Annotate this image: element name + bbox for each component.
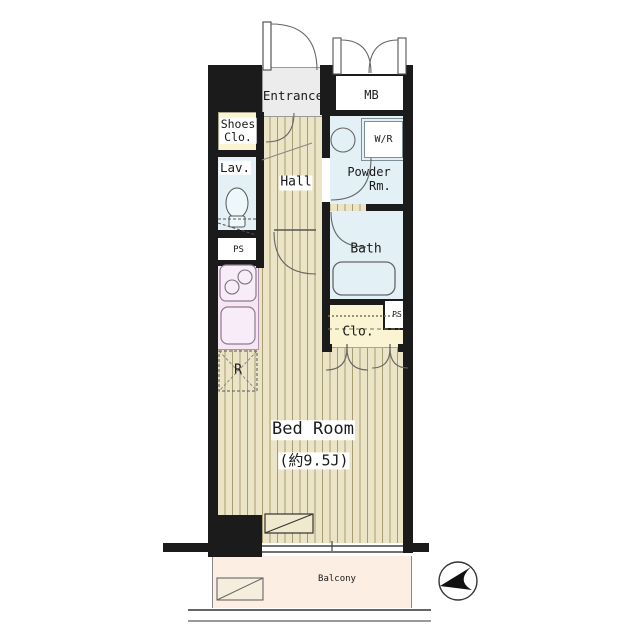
washer-label: W/R <box>374 134 392 145</box>
wall <box>330 299 385 305</box>
pipe-space-left-label: PS <box>233 245 244 255</box>
meter-box-label: MB <box>364 88 378 102</box>
shoes-closet-label: Shoes Clo. <box>220 118 257 144</box>
wall <box>213 150 260 157</box>
balcony <box>212 556 412 608</box>
bedroom-size-label: (約9.5J) <box>278 452 349 469</box>
north-arrow-pointer <box>440 567 472 590</box>
window-opening <box>262 543 403 555</box>
pipe-space-right-label: PS <box>392 310 402 319</box>
wall <box>330 110 405 116</box>
mb-door-swing-arc <box>369 40 398 73</box>
bath-label: Bath <box>349 243 382 258</box>
mb-door-swing-arc <box>341 40 371 73</box>
entrance-label: Entrance <box>262 89 324 103</box>
balcony-label: Balcony <box>317 574 357 584</box>
powder-room-label: Powder Rm. <box>346 166 391 194</box>
lavatory-label: Lav. <box>219 161 251 175</box>
wall-pillar <box>208 515 262 557</box>
wall <box>322 344 332 352</box>
floor-plan: Entrance MB PS W/R PS <box>0 0 640 640</box>
wall <box>320 65 335 115</box>
bedroom-name-label: Bed Room <box>271 420 355 440</box>
entrance-door-leaf <box>263 22 271 70</box>
wall <box>213 260 260 266</box>
hall-label: Hall <box>279 176 312 191</box>
wall <box>208 65 218 517</box>
entrance-door-swing-arc <box>271 24 317 70</box>
wall <box>213 230 260 236</box>
kitchen-counter <box>217 263 259 350</box>
washer-space: W/R <box>364 121 403 158</box>
wall <box>322 112 330 352</box>
closet-label: Clo. <box>341 326 374 341</box>
wall <box>366 204 405 211</box>
wall-stub-left <box>163 543 208 552</box>
wall <box>398 344 407 352</box>
refrigerator-label: R <box>233 364 243 379</box>
entrance-floor: Entrance <box>262 67 324 117</box>
door-opening <box>322 158 330 202</box>
north-arrow-icon <box>439 562 477 600</box>
wall <box>256 112 264 268</box>
wall <box>403 65 413 553</box>
